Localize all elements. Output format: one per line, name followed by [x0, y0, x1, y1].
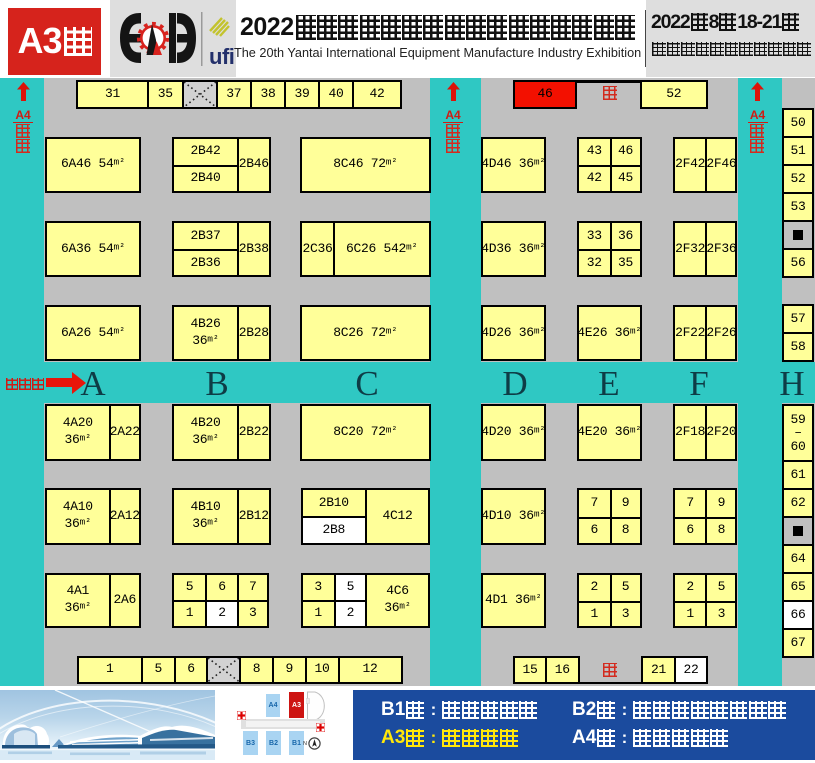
- svg-text:ufi: ufi: [209, 44, 234, 68]
